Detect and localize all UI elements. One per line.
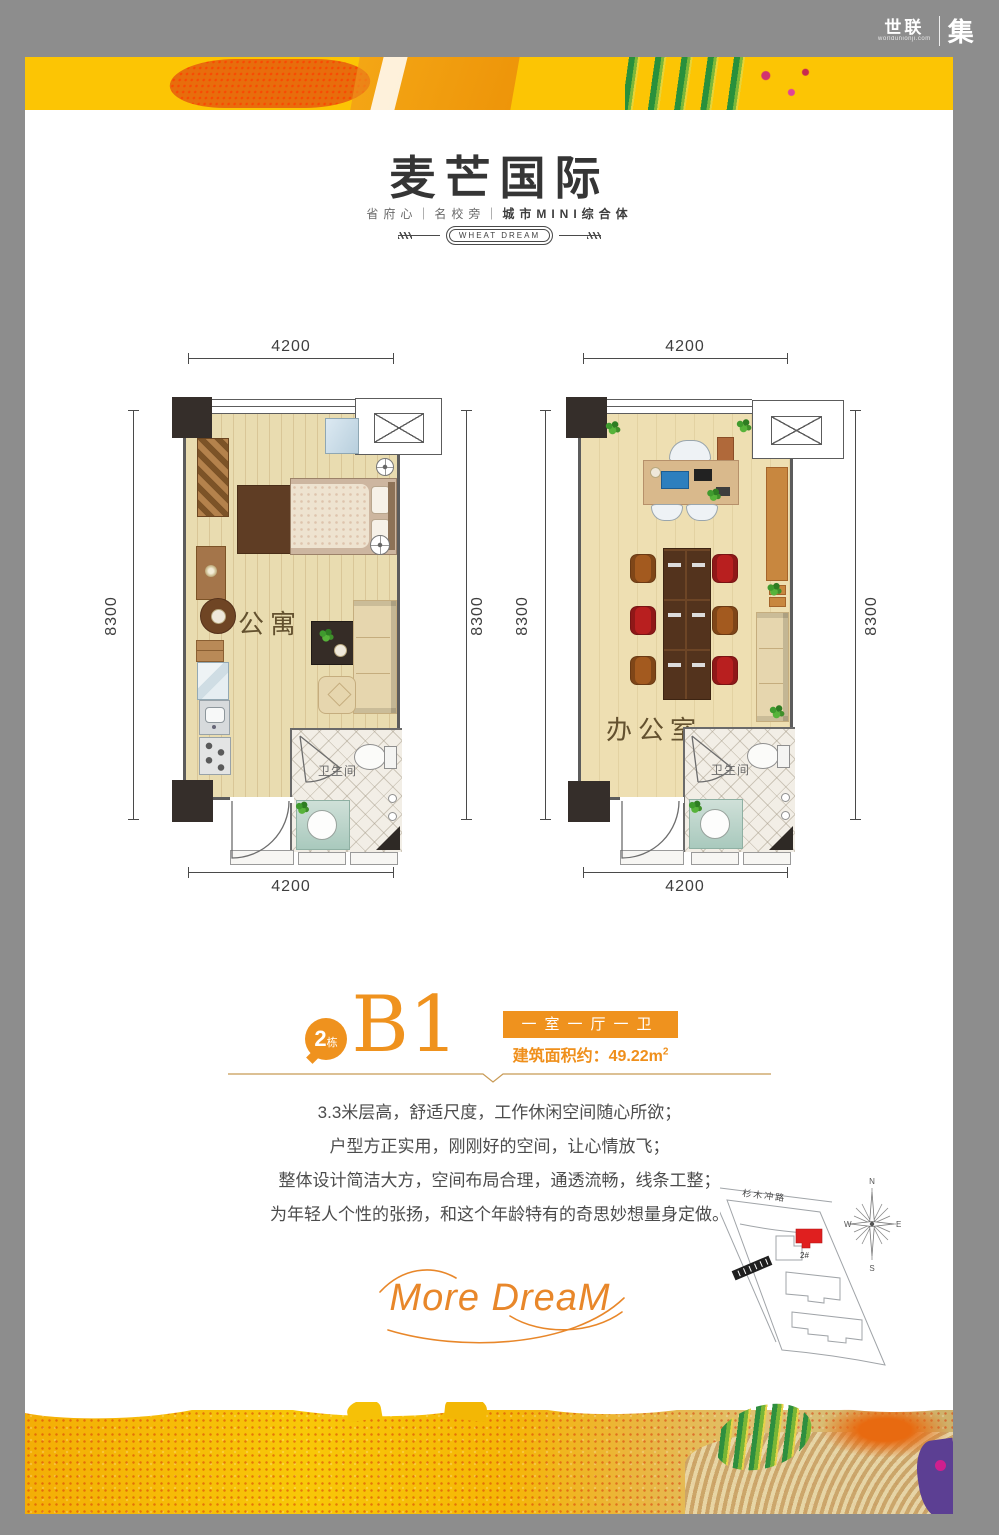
dim-line-bottom-left (188, 872, 394, 873)
dim-label-top-left: 4200 (251, 338, 331, 356)
shower-door-office (692, 736, 732, 782)
paint-dot-magenta (935, 1460, 946, 1471)
dim-line-mid-left (466, 410, 467, 820)
poster-frame: 世联 worldunionji.com 集 麦芒国际 省府心｜名校旁｜城市MIN… (0, 0, 999, 1535)
area-value: 49.22m (609, 1048, 663, 1065)
dim-label-mid-right: 8300 (514, 586, 532, 646)
road-left-sign (732, 1256, 773, 1281)
section-divider (228, 1068, 771, 1088)
building-suffix: 栋 (327, 1037, 338, 1049)
compass-n: N (869, 1177, 875, 1186)
bottom-paint-band (25, 1402, 953, 1514)
area-prefix: 建筑面积约： (513, 1048, 609, 1065)
door-arc-office (622, 801, 679, 858)
dim-line-top-right (583, 358, 788, 359)
compass-w: W (844, 1220, 852, 1229)
compass-s: S (869, 1264, 874, 1272)
dim-label-left-outer: 8300 (103, 586, 121, 646)
dim-label-bottom-right: 4200 (645, 878, 725, 896)
layout-tag: 一室一厅一卫 (503, 1011, 678, 1038)
road-top-label: 杉木冲路 (742, 1187, 787, 1203)
building-2-outline (786, 1272, 840, 1303)
dim-line-left-outer (133, 410, 134, 820)
highlight-building (796, 1229, 822, 1248)
dim-label-right-outer: 8300 (863, 586, 881, 646)
dim-label-mid-left: 8300 (469, 586, 487, 646)
dim-line-bottom-right (583, 872, 788, 873)
dim-line-mid-right (545, 410, 546, 820)
area-sup: 2 (663, 1047, 669, 1058)
building-tag: 2# (800, 1251, 809, 1260)
dim-line-right-outer (855, 410, 856, 820)
slogan-script: More DreaM (360, 1250, 640, 1350)
slogan-text: More DreaM (389, 1277, 610, 1319)
building-badge: 2栋 (305, 1018, 347, 1060)
compass-icon: N W E S (842, 1176, 902, 1272)
dim-label-bottom-left: 4200 (251, 878, 331, 896)
dim-line-top-left (188, 358, 394, 359)
area-text: 建筑面积约：49.22m2 (498, 1042, 683, 1066)
building-number: 2 (314, 1026, 326, 1051)
description-line-2: 户型方正实用，刚刚好的空间，让心情放飞； (135, 1130, 864, 1164)
shower-door-apartment (300, 736, 340, 782)
unit-name: B1 (345, 980, 465, 1070)
compass-e: E (896, 1220, 901, 1229)
dim-label-top-right: 4200 (645, 338, 725, 356)
building-3-outline (792, 1312, 862, 1343)
description-line-1: 3.3米层高，舒适尺度，工作休闲空间随心所欲； (135, 1096, 864, 1130)
door-arc-apartment (232, 801, 289, 858)
